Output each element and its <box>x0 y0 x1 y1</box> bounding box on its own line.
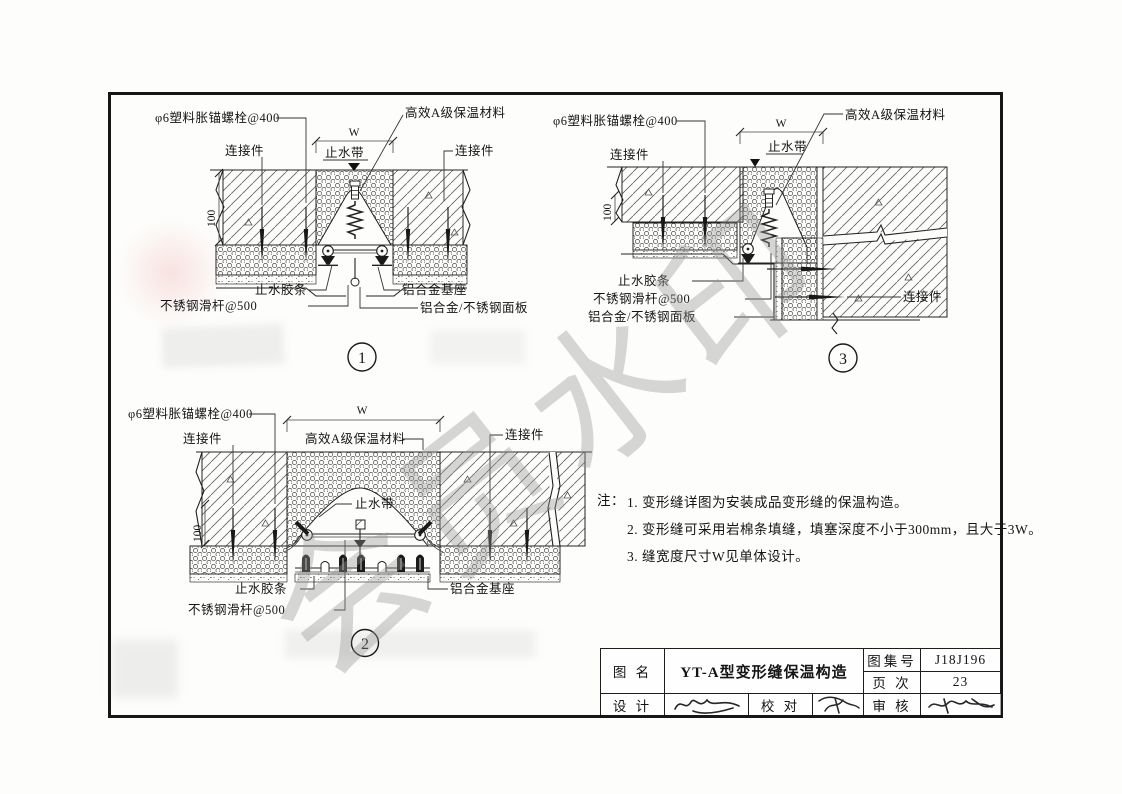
atlas-number-label: 图集号 <box>864 649 921 671</box>
drawing-name-value: YT-A型变形缝保温构造 <box>665 649 864 693</box>
svg-text:1: 1 <box>358 350 366 367</box>
svg-text:W: W <box>776 118 787 130</box>
atlas-number-value: J18J196 <box>921 649 1001 671</box>
proof-label: 校 对 <box>749 694 813 715</box>
alu-base-label: 铝合金基座 <box>450 581 515 596</box>
bolt <box>350 181 360 199</box>
proof-signature <box>813 694 864 715</box>
design-label: 设 计 <box>601 694 665 715</box>
design-signature <box>665 694 749 715</box>
insulation-label: 高效A级保温材料 <box>305 431 406 446</box>
connector-label: 连接件 <box>225 143 264 158</box>
connector-label: 连接件 <box>183 431 222 446</box>
center-bolt <box>356 520 365 529</box>
dim-w: W <box>283 405 444 432</box>
dim-100: 100 <box>206 169 223 246</box>
detail-1-number: 1 <box>348 343 376 371</box>
insulation-label: 高效A级保温材料 <box>405 105 506 120</box>
svg-text:100: 100 <box>192 525 204 543</box>
waterstop-label: 止水带 <box>355 497 394 511</box>
detail-2-number: 2 <box>352 630 379 657</box>
waterstop-marker <box>750 159 760 167</box>
svg-text:W: W <box>357 405 368 417</box>
page-number-label: 页 次 <box>864 672 921 694</box>
anchor-bolt-label: φ6塑料胀锚螺栓@400 <box>128 406 253 421</box>
roller <box>743 244 754 255</box>
review-signature <box>921 694 1001 715</box>
drawing-sheet: 100 W φ6塑料胀锚螺栓@400 连接件 止水带 高效A级保温材料 连接件 … <box>0 0 1122 794</box>
slide-rod-label: 不锈钢滑杆@500 <box>160 298 257 313</box>
signature-icon <box>926 695 996 715</box>
detail-3-drawing: 100 W φ6塑料胀锚螺栓@400 连接件 止水带 高效A级保温材料 止水胶条… <box>545 95 1001 390</box>
dim-100: 100 <box>602 191 619 225</box>
svg-text:100: 100 <box>206 210 218 228</box>
connector-label: 连接件 <box>455 143 494 158</box>
svg-text:3: 3 <box>839 351 847 368</box>
svg-text:2: 2 <box>361 636 369 653</box>
svg-text:W: W <box>349 127 360 139</box>
alu-base-label: 铝合金基座 <box>402 282 467 297</box>
anchor-bolt-label: φ6塑料胀锚螺栓@400 <box>155 110 280 125</box>
anchor-bolt-label: φ6塑料胀锚螺栓@400 <box>553 113 678 128</box>
seal-strip-label: 止水胶条 <box>618 273 670 288</box>
detail-3-number: 3 <box>829 344 857 372</box>
detail-1-drawing: 100 W φ6塑料胀锚螺栓@400 连接件 止水带 高效A级保温材料 连接件 … <box>110 95 530 385</box>
roller <box>377 246 388 257</box>
slide-rod-label: 不锈钢滑杆@500 <box>188 602 285 617</box>
connector-label: 连接件 <box>505 427 544 442</box>
bolt <box>764 189 774 207</box>
insulation-label: 高效A级保温材料 <box>845 107 946 122</box>
svg-text:100: 100 <box>602 204 614 222</box>
slide-rod-label: 不锈钢滑杆@500 <box>593 291 690 306</box>
waterstop-label: 止水带 <box>325 146 364 160</box>
seal-strip-label: 止水胶条 <box>255 282 307 297</box>
roller <box>323 246 334 257</box>
seal-strip-label: 止水胶条 <box>235 581 287 596</box>
connector-label: 连接件 <box>610 147 649 162</box>
review-label: 审 核 <box>864 694 921 715</box>
alu-panel-label: 铝合金/不锈钢面板 <box>420 300 528 315</box>
detail-2-drawing: 100 W φ6塑料胀锚螺栓@400 连接件 高效A级保温材料 连接件 止水带 … <box>112 396 692 666</box>
alu-panel-label: 铝合金/不锈钢面板 <box>588 309 696 324</box>
signature-icon <box>671 695 743 715</box>
signature-icon <box>815 695 861 715</box>
page-number-value: 23 <box>921 672 1001 694</box>
connector-label: 连接件 <box>903 289 942 304</box>
waterstop-label: 止水带 <box>768 140 807 154</box>
